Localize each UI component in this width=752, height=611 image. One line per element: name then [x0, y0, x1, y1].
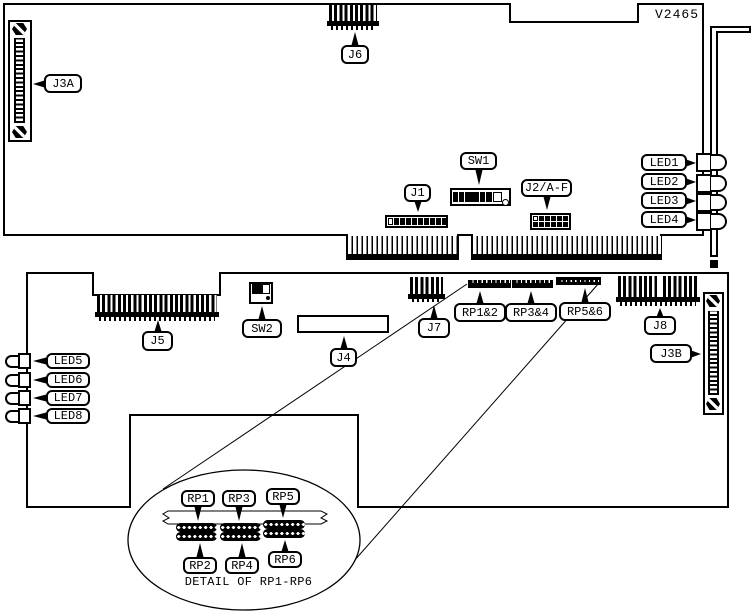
j8-header-teeth	[620, 302, 696, 306]
callout-label: RP1&2	[462, 307, 498, 319]
callout-rp56: RP5&6	[559, 302, 611, 321]
j1-pin-row	[388, 218, 447, 225]
callout-tail	[235, 505, 243, 521]
j2af-cell	[539, 216, 544, 221]
j3b-pin-column	[708, 311, 719, 395]
callout-rp2: RP2	[183, 557, 217, 574]
callout-tail	[476, 291, 484, 305]
callout-label: LED8	[54, 410, 83, 422]
callout-label: J6	[348, 49, 362, 61]
callout-j5: J5	[142, 331, 173, 351]
led2-body	[696, 174, 712, 193]
j2af-cell	[539, 222, 544, 227]
callout-label: RP1	[187, 493, 209, 505]
j1-pin	[424, 218, 429, 225]
led4-body	[696, 212, 712, 231]
callout-label: J4	[336, 352, 350, 364]
sw1-segment	[459, 192, 464, 202]
callout-rp34: RP3&4	[505, 303, 557, 322]
callout-led1: LED1	[641, 154, 687, 171]
j2af-cell	[557, 216, 562, 221]
callout-rp3: RP3	[222, 490, 256, 507]
callout-label: RP6	[274, 554, 296, 566]
callout-tail	[685, 178, 696, 186]
led1-body	[696, 153, 712, 172]
rp12-ticks	[469, 280, 510, 283]
sw1-segment	[480, 192, 485, 202]
callout-label: J7	[427, 322, 441, 334]
callout-tail	[527, 291, 535, 305]
callout-sw2: SW2	[242, 319, 282, 338]
callout-tail	[690, 350, 701, 358]
callout-tail	[685, 159, 696, 167]
detail-rp5-row	[263, 520, 305, 529]
sw1-segment	[465, 192, 479, 202]
card-edge-fingers-left	[348, 236, 458, 259]
detail-caption: DETAIL OF RP1-RP6	[181, 575, 316, 589]
callout-led3: LED3	[641, 192, 687, 209]
callout-led6: LED6	[46, 372, 90, 388]
callout-j3b: J3B	[650, 344, 692, 363]
j1-pin	[430, 218, 435, 225]
callout-tail	[685, 197, 696, 205]
sw1-switch-segments	[453, 192, 502, 202]
j7-header-teeth	[412, 299, 441, 302]
rp34-ticks	[513, 280, 552, 283]
sw2-slider-white	[262, 284, 270, 294]
sw1-segment-off	[493, 192, 502, 202]
callout-label: LED4	[650, 214, 679, 226]
callout-led4: LED4	[641, 211, 687, 228]
callout-rp1: RP1	[181, 490, 215, 507]
j2af-cell	[551, 222, 556, 227]
callout-label: RP2	[189, 560, 211, 572]
detail-rp4-row	[220, 532, 261, 541]
j1-pin	[418, 218, 423, 225]
j6-header-teeth	[331, 26, 375, 30]
callout-label: RP5	[272, 491, 294, 503]
callout-tail	[258, 306, 266, 321]
led6-body	[18, 372, 31, 388]
callout-label: J5	[150, 335, 164, 347]
callout-rp5: RP5	[266, 488, 300, 505]
board-diagram-canvas: V2465 J3A J6 SW1 J1 J2/A-F LED1 LED2 LED…	[0, 0, 752, 611]
callout-tail	[543, 195, 551, 210]
callout-label: LED6	[54, 374, 83, 386]
j5-header-pins	[97, 295, 217, 312]
j1-pin-open	[388, 218, 393, 225]
callout-led2: LED2	[641, 173, 687, 190]
callout-label: LED5	[54, 355, 83, 367]
callout-tail	[154, 320, 162, 333]
callout-tail	[351, 32, 359, 47]
callout-label: LED7	[54, 392, 83, 404]
callout-tail	[238, 543, 246, 559]
callout-label: LED2	[650, 176, 679, 188]
callout-j8: J8	[644, 316, 676, 335]
j1-pin	[442, 218, 447, 225]
callout-sw1: SW1	[460, 152, 497, 170]
callout-tail	[281, 540, 289, 553]
card-edge-fingers-right	[473, 236, 661, 259]
j2af-cell	[563, 222, 568, 227]
detail-rp2-row	[176, 532, 217, 541]
detail-rp3-row	[220, 523, 261, 532]
callout-label: J3B	[660, 348, 682, 360]
callout-label: LED1	[650, 157, 679, 169]
j8-header-pins-left	[618, 276, 657, 297]
j8-header-pins-right	[663, 276, 697, 297]
j4-connector	[297, 315, 389, 333]
callout-label: RP5&6	[567, 306, 603, 318]
sw2-slider-black	[252, 284, 262, 294]
j2af-cell	[545, 222, 550, 227]
callout-tail	[33, 357, 48, 365]
j7-header-pins	[410, 277, 443, 294]
j1-pin	[400, 218, 405, 225]
callout-tail	[194, 505, 202, 521]
led7-body	[18, 390, 31, 406]
rp56-ticks	[558, 280, 599, 282]
detail-rp6-row	[263, 529, 305, 538]
callout-label: LED3	[650, 195, 679, 207]
callout-tail	[279, 503, 287, 518]
j2af-cell	[533, 222, 538, 227]
sw2-index-dot	[266, 296, 270, 300]
callout-j4: J4	[330, 348, 357, 367]
sw1-segment	[453, 192, 458, 202]
callout-label: J1	[410, 187, 424, 199]
callout-tail	[340, 336, 348, 350]
j1-pin	[436, 218, 441, 225]
bracket-bottom-tab	[710, 260, 718, 268]
led3-body	[696, 193, 712, 212]
callout-label: RP4	[231, 560, 253, 572]
callout-j6: J6	[341, 45, 369, 64]
led8-body	[18, 408, 31, 424]
j1-pin	[412, 218, 417, 225]
j2af-cell	[563, 216, 568, 221]
j2af-cell	[545, 216, 550, 221]
part-number: V2465	[655, 7, 699, 22]
j3a-pin-column	[14, 38, 25, 123]
callout-j3a: J3A	[44, 74, 82, 93]
callout-rp4: RP4	[225, 557, 259, 574]
callout-tail	[196, 543, 204, 559]
callout-led7: LED7	[46, 390, 90, 406]
j2af-cell	[551, 216, 556, 221]
callout-label: RP3&4	[513, 307, 549, 319]
callout-tail	[33, 394, 48, 402]
j2af-cell	[557, 222, 562, 227]
callout-j1: J1	[404, 184, 431, 202]
sw1-segment	[486, 192, 492, 202]
sw1-index-dot	[502, 199, 509, 206]
callout-label: RP3	[228, 493, 250, 505]
callout-rp6: RP6	[268, 551, 302, 568]
callout-tail	[656, 308, 664, 318]
callout-tail	[414, 200, 422, 212]
j2af-jumper-block	[530, 213, 571, 230]
callout-j2af: J2/A-F	[521, 179, 572, 197]
callout-tail	[685, 216, 696, 224]
callout-tail	[475, 168, 483, 185]
callout-label: J2/A-F	[525, 182, 568, 194]
j2af-cell-open	[533, 216, 538, 221]
callout-tail	[430, 305, 438, 320]
j1-pin	[394, 218, 399, 225]
led5-body	[18, 353, 31, 369]
callout-rp12: RP1&2	[454, 303, 506, 322]
callout-label: SW1	[468, 155, 490, 167]
callout-tail	[33, 376, 48, 384]
callout-tail	[33, 80, 46, 88]
callout-label: J3A	[52, 78, 74, 90]
callout-led8: LED8	[46, 408, 90, 424]
callout-j7: J7	[418, 318, 450, 338]
j6-header-pins	[329, 5, 377, 21]
callout-led5: LED5	[46, 353, 90, 369]
detail-rp1-row	[176, 523, 217, 532]
callout-tail	[33, 412, 48, 420]
callout-label: J8	[653, 320, 667, 332]
callout-label: SW2	[251, 323, 273, 335]
j1-pin	[406, 218, 411, 225]
callout-tail	[581, 288, 589, 304]
